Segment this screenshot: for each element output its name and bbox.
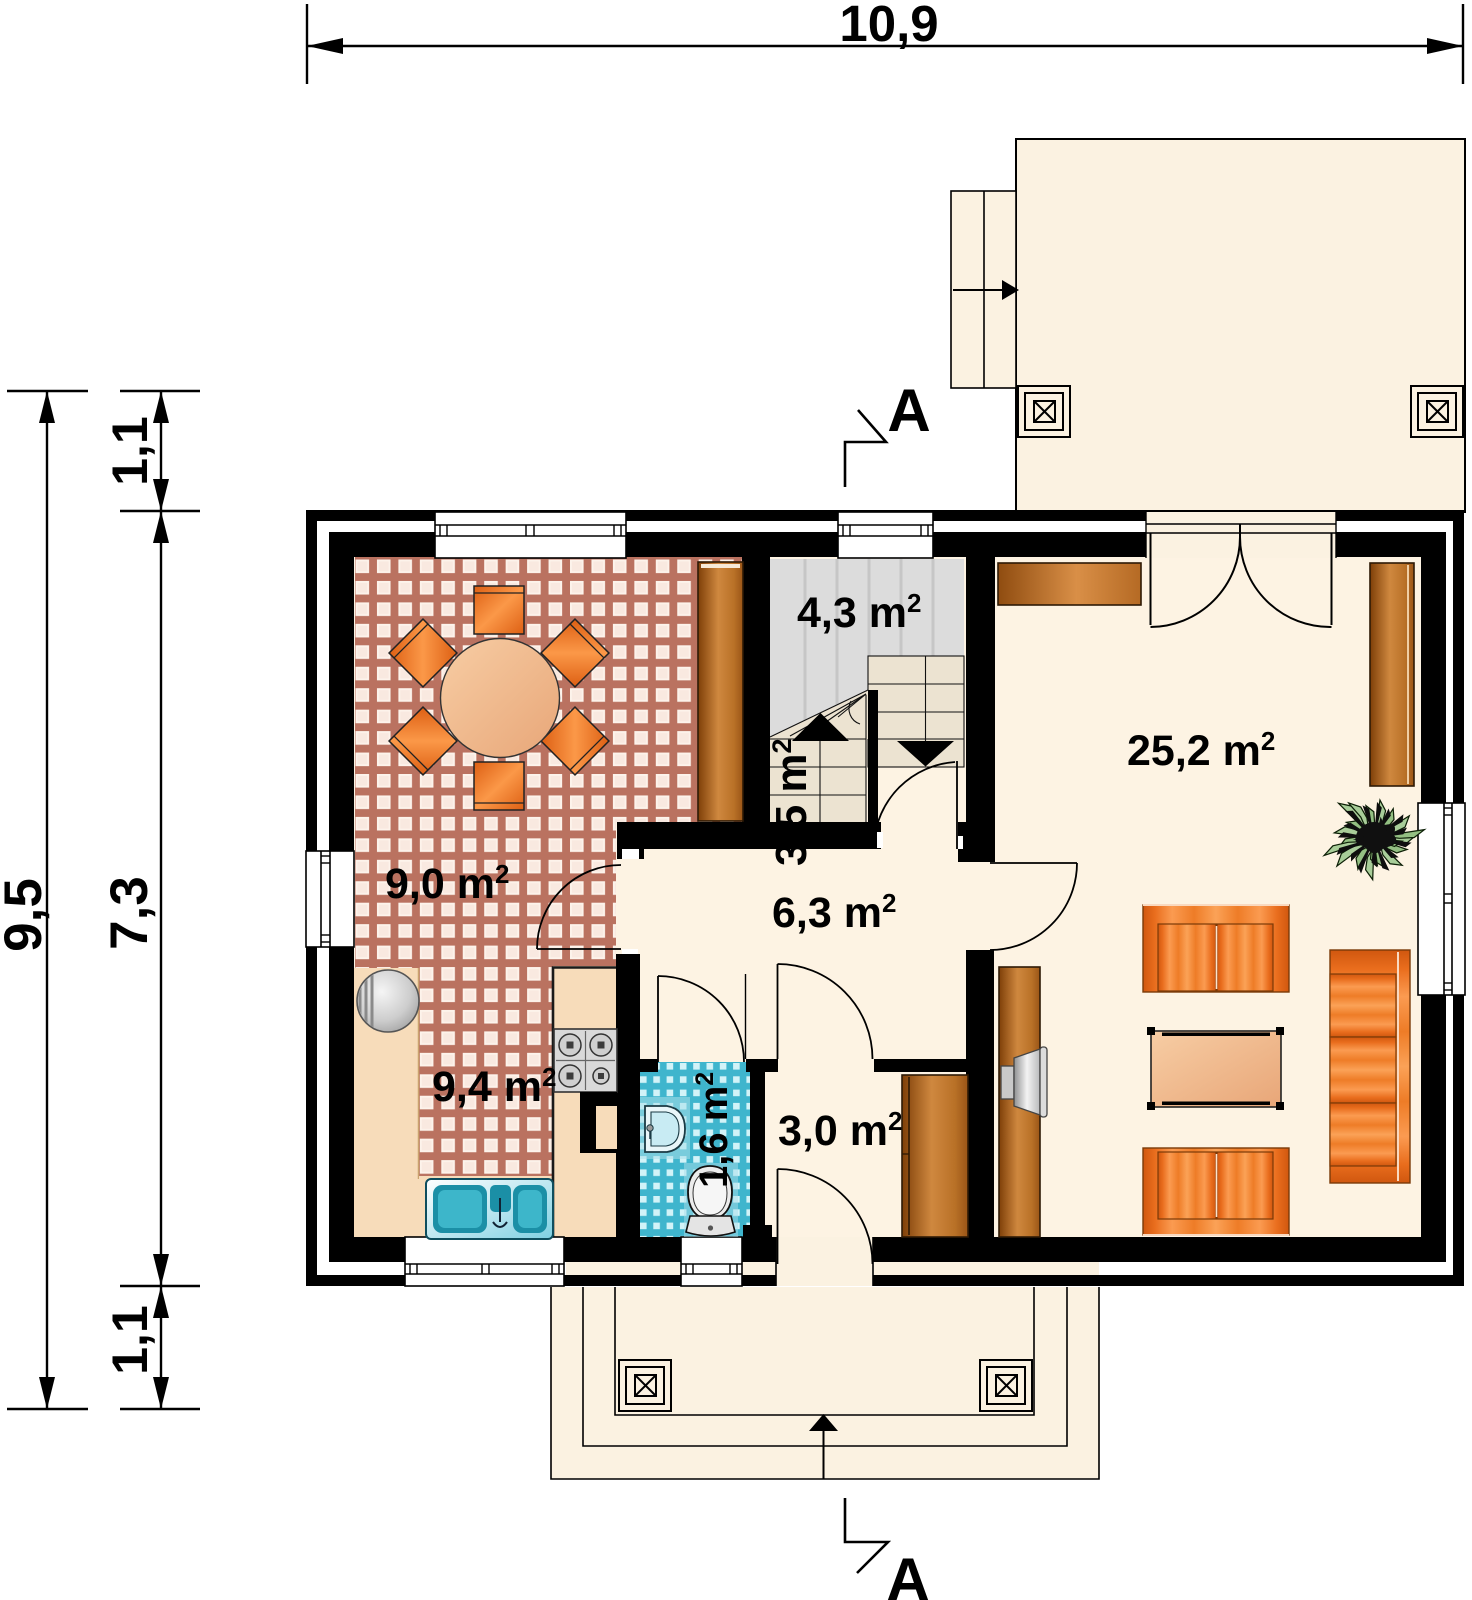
svg-text:1,1: 1,1 xyxy=(102,416,158,486)
svg-text:6,3 m2: 6,3 m2 xyxy=(772,888,896,937)
svg-text:1,6 m2: 1,6 m2 xyxy=(691,1072,736,1188)
svg-text:1,1: 1,1 xyxy=(102,1305,158,1375)
svg-text:7,3: 7,3 xyxy=(100,876,159,950)
svg-text:4,3 m2: 4,3 m2 xyxy=(797,588,921,637)
svg-text:9,0 m2: 9,0 m2 xyxy=(385,859,509,908)
svg-text:25,2 m2: 25,2 m2 xyxy=(1127,726,1275,775)
svg-text:9,4 m2: 9,4 m2 xyxy=(432,1062,556,1111)
svg-text:3,0 m2: 3,0 m2 xyxy=(778,1106,902,1155)
svg-text:A: A xyxy=(886,1546,929,1600)
svg-text:3,5 m2: 3,5 m2 xyxy=(767,738,816,866)
svg-text:A: A xyxy=(887,377,930,444)
svg-text:10,9: 10,9 xyxy=(839,0,938,52)
svg-text:9,5: 9,5 xyxy=(0,878,53,952)
